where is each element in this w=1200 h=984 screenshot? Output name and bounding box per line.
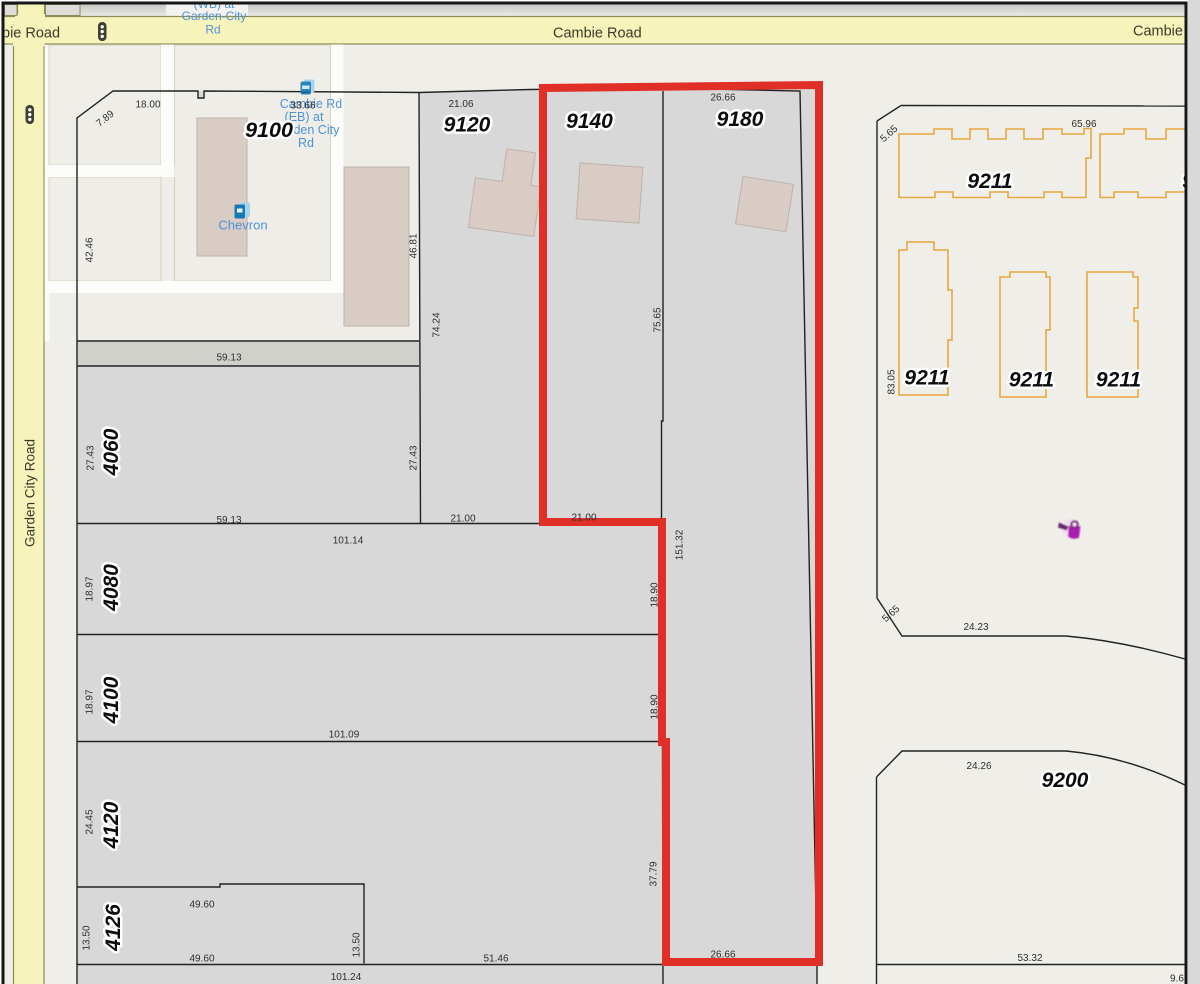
svg-text:9180: 9180: [717, 108, 764, 131]
svg-text:bie Road: bie Road: [2, 26, 60, 42]
svg-text:9140: 9140: [566, 110, 613, 133]
svg-text:83.05: 83.05: [887, 369, 898, 394]
svg-text:59.13: 59.13: [216, 353, 241, 364]
svg-text:18.90: 18.90: [650, 694, 661, 719]
svg-text:75.65: 75.65: [653, 307, 664, 332]
svg-text:74.24: 74.24: [432, 312, 443, 337]
svg-text:65.96: 65.96: [1071, 119, 1096, 130]
svg-text:37.79: 37.79: [649, 861, 660, 886]
svg-text:27.43: 27.43: [86, 445, 97, 470]
svg-text:49.60: 49.60: [189, 954, 214, 965]
svg-text:4100: 4100: [100, 676, 123, 724]
svg-text:9120: 9120: [444, 114, 491, 137]
svg-text:Rd: Rd: [205, 23, 220, 37]
svg-text:46.81: 46.81: [409, 233, 420, 258]
svg-text:9211: 9211: [904, 367, 949, 390]
svg-text:18.97: 18.97: [85, 576, 96, 601]
svg-text:Garden City Road: Garden City Road: [23, 439, 38, 547]
svg-text:4126: 4126: [102, 904, 125, 952]
svg-text:4060: 4060: [100, 428, 123, 476]
svg-text:26.66: 26.66: [710, 950, 735, 961]
svg-text:42.46: 42.46: [85, 237, 96, 262]
svg-text:101.24: 101.24: [331, 972, 362, 983]
svg-text:9100: 9100: [245, 118, 293, 142]
svg-text:Garden-City: Garden-City: [182, 9, 247, 23]
svg-text:24.45: 24.45: [85, 809, 96, 834]
svg-text:Rd: Rd: [298, 136, 314, 150]
svg-text:33.66: 33.66: [290, 101, 315, 112]
svg-text:26.66: 26.66: [710, 93, 735, 104]
svg-text:101.09: 101.09: [329, 730, 360, 741]
svg-text:21.06: 21.06: [448, 99, 473, 110]
svg-text:53.32: 53.32: [1017, 953, 1042, 964]
svg-text:Chevron: Chevron: [218, 218, 267, 233]
svg-text:18.00: 18.00: [135, 100, 160, 111]
svg-text:18.90: 18.90: [650, 582, 661, 607]
svg-text:4080: 4080: [100, 564, 123, 612]
svg-text:21.00: 21.00: [450, 514, 475, 525]
svg-text:18.97: 18.97: [85, 689, 96, 714]
svg-text:59.13: 59.13: [216, 515, 241, 526]
svg-text:49.60: 49.60: [189, 900, 214, 911]
svg-text:27.43: 27.43: [409, 445, 420, 470]
svg-text:24.23: 24.23: [963, 622, 988, 633]
svg-text:4120: 4120: [100, 801, 123, 849]
svg-text:9211: 9211: [1096, 369, 1141, 392]
svg-text:24.26: 24.26: [966, 761, 991, 772]
svg-text:13.50: 13.50: [82, 925, 93, 950]
svg-text:Cambie Road: Cambie Road: [553, 26, 642, 42]
svg-text:13.50: 13.50: [352, 932, 363, 957]
svg-text:9200: 9200: [1042, 769, 1089, 792]
svg-text:21.00: 21.00: [571, 513, 596, 524]
svg-text:151.32: 151.32: [675, 529, 686, 560]
svg-text:9.6: 9.6: [1170, 974, 1184, 984]
svg-text:9211: 9211: [1009, 369, 1054, 392]
svg-text:51.46: 51.46: [483, 954, 508, 965]
svg-text:101.14: 101.14: [333, 536, 364, 547]
svg-text:9211: 9211: [967, 170, 1012, 193]
